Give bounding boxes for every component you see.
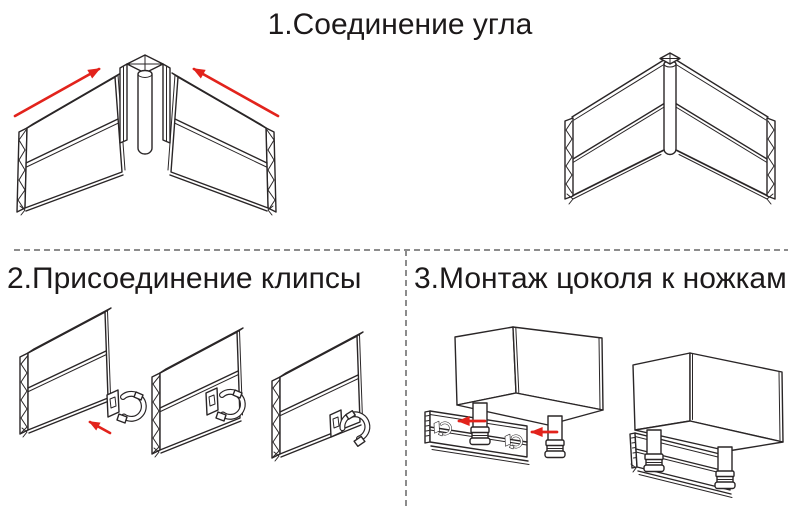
panel-with-clip-locked [272,332,376,461]
assembled-panel-left [565,58,669,204]
step-3-title: 3.Монтаж цоколя к ножкам [414,262,787,295]
panel-with-clip-apart [20,308,144,437]
horizontal-dashed-divider [14,249,788,251]
plinth-clip [107,390,144,423]
step-2-clip-attachment-diagram [0,300,400,509]
step-3-plinth-mounting-diagram [405,300,800,509]
corner-connector [120,55,170,154]
adjustable-leg [644,430,664,472]
plinth-assembly-instruction-sheet: 1.Соединение угла [0,0,800,509]
plinth-panel-left-with-arrow [15,69,125,215]
step-1-title: 1.Соединение угла [0,8,800,41]
adjustable-leg [715,447,735,489]
plinth-panel-right-with-arrow [168,69,278,215]
adjustable-leg [470,403,490,445]
step-2-title: 2.Присоединение клипсы [7,262,361,295]
adjustable-leg [545,416,565,458]
step-1-exploded-corner-diagram [0,45,300,235]
assembled-panel-right [671,58,775,204]
red-direction-arrow [90,422,110,433]
step-1-assembled-corner-diagram [528,45,798,235]
panel-with-clip-inserted [152,328,243,457]
